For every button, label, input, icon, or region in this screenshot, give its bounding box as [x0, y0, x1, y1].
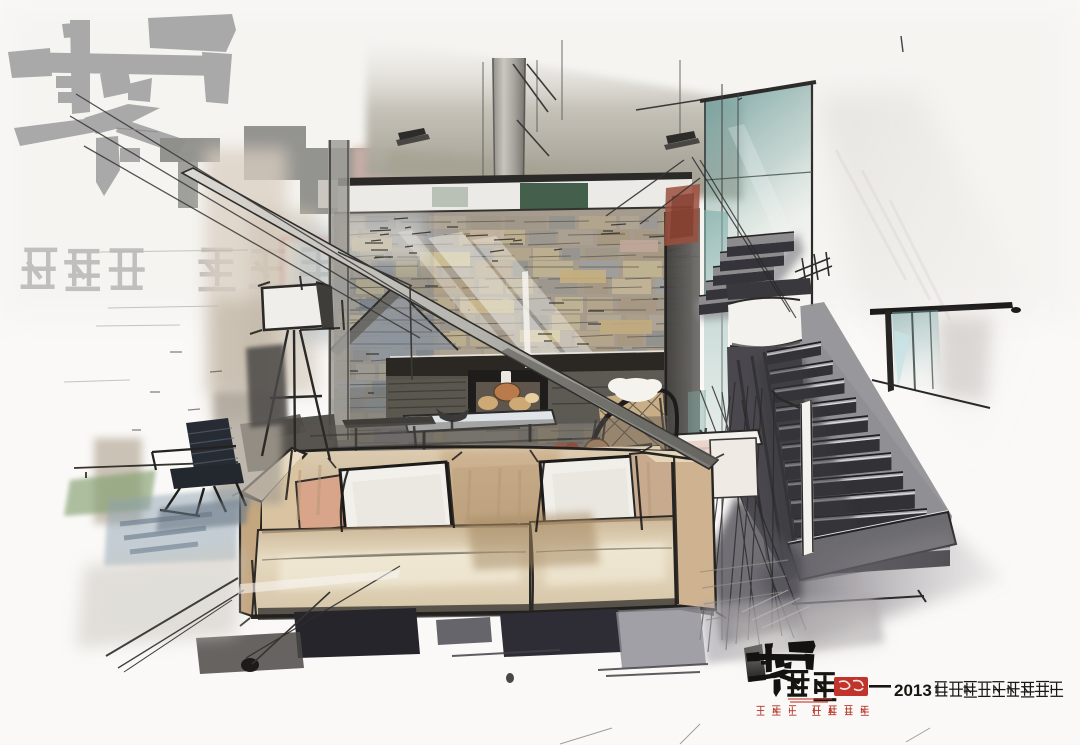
- svg-text:2013: 2013: [894, 681, 932, 700]
